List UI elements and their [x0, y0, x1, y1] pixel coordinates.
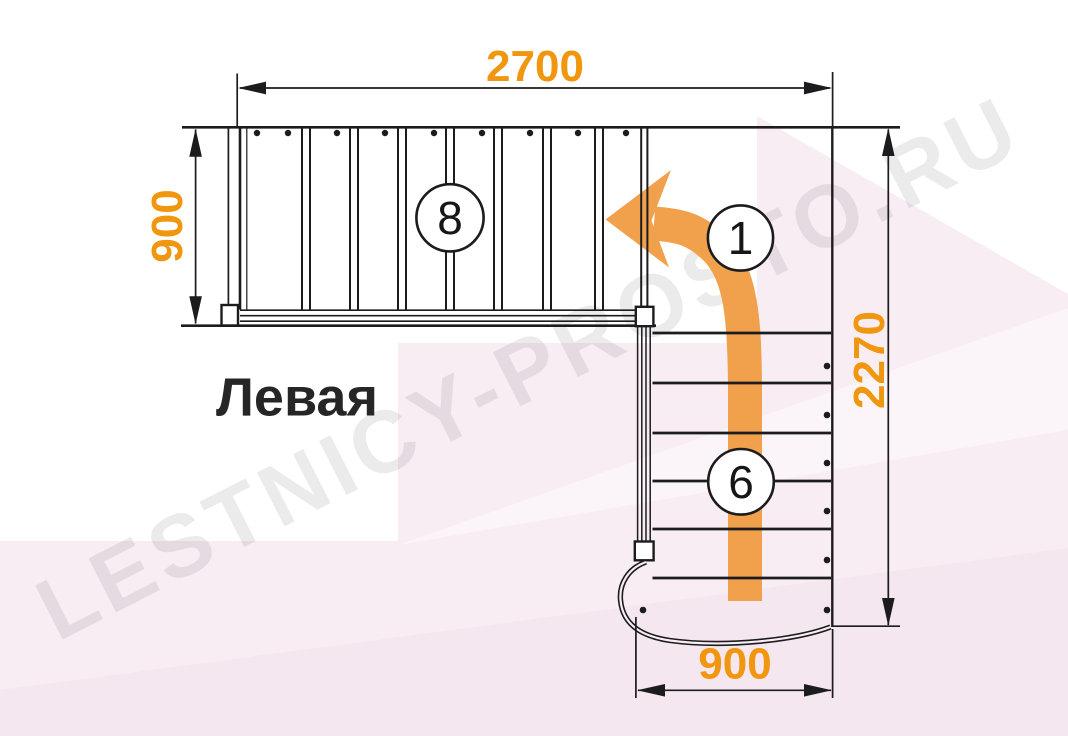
dimension-top-label: 2700	[486, 42, 584, 91]
newel-post	[222, 305, 239, 326]
upper-flight-step-count-badge: 8	[416, 184, 483, 251]
stair-plan-drawing: LESTNICY-PROSTO.RU	[0, 0, 1068, 736]
turn-marker-badge: 1	[708, 205, 773, 270]
stair-side-label: Левая	[216, 368, 378, 428]
dimension-right-label: 2270	[845, 311, 894, 409]
dimension-bottom-label: 900	[698, 640, 771, 689]
newel-post	[636, 307, 654, 326]
upper-flight-step-count: 8	[437, 192, 463, 244]
stair-plan-page: LESTNICY-PROSTO.RU	[0, 0, 1068, 736]
newel-post	[635, 542, 654, 561]
lower-flight-step-count-badge: 6	[708, 449, 774, 515]
turn-marker-number: 1	[728, 212, 754, 264]
lower-flight-step-count: 6	[728, 456, 754, 508]
dimension-left-label: 900	[143, 189, 192, 262]
